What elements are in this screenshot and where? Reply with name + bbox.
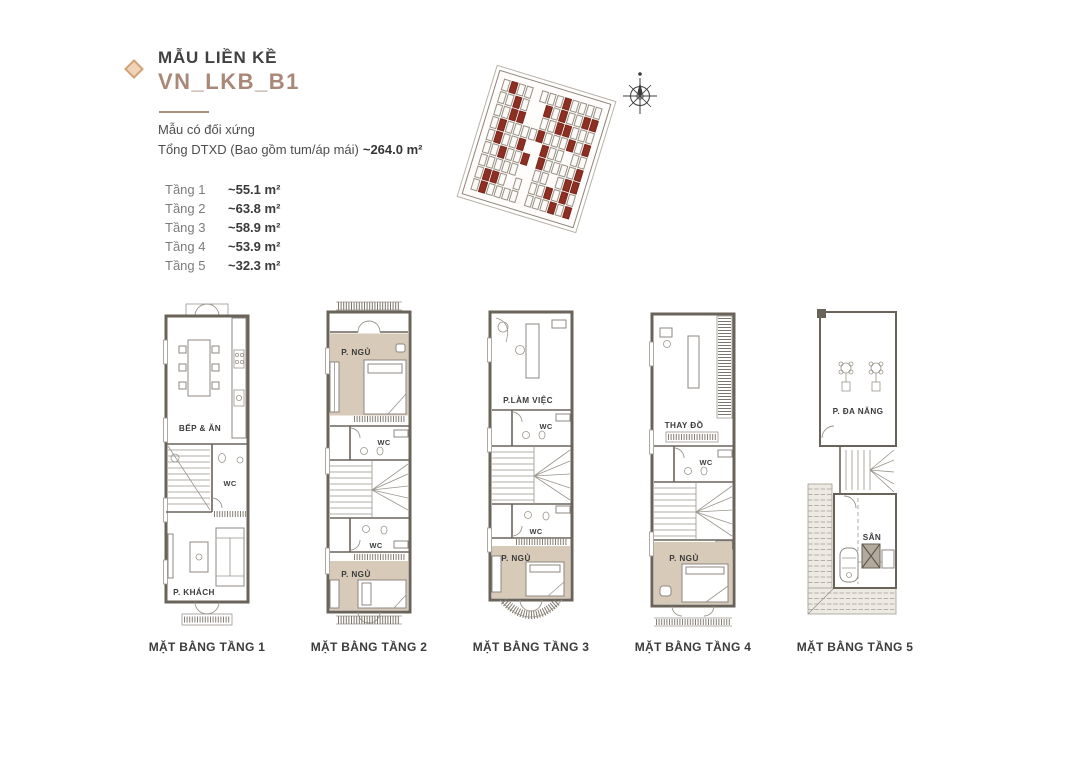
room-label-wc: WC bbox=[369, 541, 382, 550]
floor-area: ~32.3 m² bbox=[228, 256, 280, 275]
room-label-living: P. KHÁCH bbox=[173, 587, 215, 597]
floor-plan-2: P. NGỦ WC WC bbox=[314, 298, 424, 654]
floor-label: Tầng 2 bbox=[165, 199, 228, 218]
total-area-line: Tổng DTXD (Bao gồm tum/áp mái)~264.0 m² bbox=[158, 142, 422, 157]
page-title: MẪU LIỀN KỀ bbox=[158, 48, 277, 68]
plan-caption-1: MẶT BẰNG TẦNG 1 bbox=[149, 640, 266, 654]
page: MẪU LIỀN KỀ VN_LKB_B1 Mẫu có đối xứng Tổ… bbox=[0, 0, 1080, 768]
floor-plan-3: P.LÀM VIỆC WC WC P. NGỦ bbox=[476, 298, 586, 654]
site-plan bbox=[448, 56, 668, 274]
floor-plan-5-drawing: P. ĐA NĂNG SÂN bbox=[800, 298, 910, 630]
floor-plan-1: BẾP & ĂN WC P. KHÁCH bbox=[152, 298, 262, 654]
floor-area-row: Tầng 4~53.9 m² bbox=[165, 237, 280, 256]
site-plan-map bbox=[462, 70, 612, 229]
room-label-dressing: THAY ĐỒ bbox=[665, 419, 704, 430]
room-label-terrace: SÂN bbox=[863, 531, 882, 542]
room-label-wc: WC bbox=[539, 422, 552, 431]
total-area-label: Tổng DTXD (Bao gồm tum/áp mái) bbox=[158, 142, 359, 157]
total-area-value: ~264.0 m² bbox=[363, 142, 423, 157]
floor-plan-4-drawing: THAY ĐỒ WC P. NGỦ bbox=[638, 298, 748, 630]
site-plan-lots bbox=[470, 78, 602, 219]
floor-area-row: Tầng 2~63.8 m² bbox=[165, 199, 280, 218]
symmetry-note: Mẫu có đối xứng bbox=[158, 122, 255, 137]
room-label-wc: WC bbox=[377, 438, 390, 447]
plan-caption-5: MẶT BẰNG TẦNG 5 bbox=[797, 640, 914, 654]
floor-area: ~53.9 m² bbox=[228, 237, 280, 256]
floor-area-row: Tầng 1~55.1 m² bbox=[165, 180, 280, 199]
title-divider bbox=[159, 111, 209, 113]
compass-icon bbox=[620, 66, 660, 118]
plan-caption-3: MẶT BẰNG TẦNG 3 bbox=[473, 640, 590, 654]
model-code: VN_LKB_B1 bbox=[158, 69, 300, 95]
floor-plan-5: P. ĐA NĂNG SÂN MẶT BẰNG TẦNG 5 bbox=[800, 298, 910, 654]
floor-area-list: Tầng 1~55.1 m² Tầng 2~63.8 m² Tầng 3~58.… bbox=[165, 180, 280, 275]
plan-caption-4: MẶT BẰNG TẦNG 4 bbox=[635, 640, 752, 654]
floor-plan-2-drawing: P. NGỦ WC WC bbox=[314, 298, 424, 630]
floor-plan-4: THAY ĐỒ WC P. NGỦ bbox=[638, 298, 748, 654]
diamond-icon bbox=[124, 59, 144, 79]
floor-area: ~63.8 m² bbox=[228, 199, 280, 218]
floor-plans-row: BẾP & ĂN WC P. KHÁCH bbox=[152, 298, 910, 654]
floor-area-row: Tầng 5~32.3 m² bbox=[165, 256, 280, 275]
room-label-wc: WC bbox=[223, 479, 236, 488]
room-label-multipurpose: P. ĐA NĂNG bbox=[833, 406, 884, 416]
floor-area: ~58.9 m² bbox=[228, 218, 280, 237]
floor-area-row: Tầng 3~58.9 m² bbox=[165, 218, 280, 237]
plan-caption-2: MẶT BẰNG TẦNG 2 bbox=[311, 640, 428, 654]
floor-area: ~55.1 m² bbox=[228, 180, 280, 199]
room-label-kitchen: BẾP & ĂN bbox=[179, 423, 221, 433]
room-label-bedroom: P. NGỦ bbox=[501, 552, 531, 563]
floor-plan-3-drawing: P.LÀM VIỆC WC WC P. NGỦ bbox=[476, 298, 586, 630]
room-label-office: P.LÀM VIỆC bbox=[503, 394, 553, 405]
room-label-wc: WC bbox=[699, 458, 712, 467]
room-label-bedroom: P. NGỦ bbox=[341, 568, 371, 579]
room-label-bedroom: P. NGỦ bbox=[669, 552, 699, 563]
floor-label: Tầng 1 bbox=[165, 180, 228, 199]
floor-label: Tầng 5 bbox=[165, 256, 228, 275]
floor-label: Tầng 4 bbox=[165, 237, 228, 256]
room-label-wc: WC bbox=[529, 527, 542, 536]
room-label-bedroom: P. NGỦ bbox=[341, 346, 371, 357]
floor-plan-1-drawing: BẾP & ĂN WC P. KHÁCH bbox=[152, 298, 262, 630]
floor-label: Tầng 3 bbox=[165, 218, 228, 237]
